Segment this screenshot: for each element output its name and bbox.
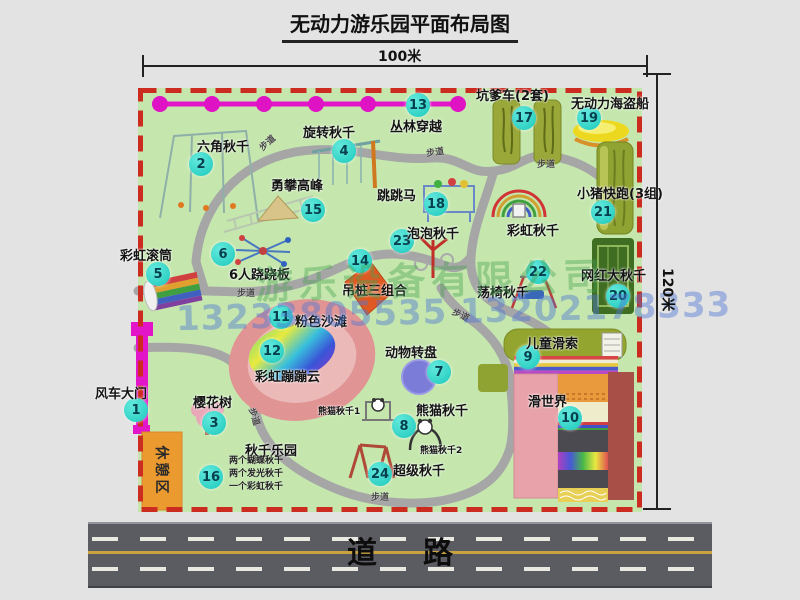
badge-six-person-seesaw: 6 bbox=[211, 242, 235, 266]
label-pirate-ship: 无动力海盗船 bbox=[571, 93, 649, 112]
path-label: 步道 bbox=[237, 286, 255, 299]
label-jumping-horse: 跳跳马 bbox=[377, 185, 416, 204]
label-animal-turntable: 动物转盘 bbox=[385, 342, 437, 361]
right-dim-tick-bottom bbox=[643, 508, 671, 510]
badge-cherry-tree: 3 bbox=[202, 411, 226, 435]
label-bubble-swing: 泡泡秋千 bbox=[407, 223, 459, 242]
badge-hexagon-swing: 2 bbox=[189, 152, 213, 176]
label-swing-chair: 荡椅秋千 bbox=[477, 282, 529, 301]
badge-pig-run: 21 bbox=[591, 200, 615, 224]
label-six-person-seesaw: 6人跷跷板 bbox=[229, 264, 290, 283]
badge-panda-swing: 8 bbox=[392, 414, 416, 438]
label-rotating-swing: 旋转秋千 bbox=[303, 122, 355, 141]
badge-pit-car: 17 bbox=[512, 106, 536, 130]
label-jungle-crossing: 丛林穿越 bbox=[390, 116, 442, 135]
road-label: 道路 bbox=[88, 524, 712, 586]
label-rainbow-swing: 彩虹秋千 bbox=[507, 220, 559, 239]
badge-hanging-pile: 14 bbox=[348, 249, 372, 273]
rest-area-label: 休憩区 bbox=[152, 446, 172, 497]
label-peak-climbing: 勇攀高峰 bbox=[271, 175, 323, 194]
badge-swing-chair: 22 bbox=[526, 260, 550, 284]
six-person-seesaw-icon bbox=[235, 235, 291, 267]
label-hexagon-swing: 六角秋千 bbox=[197, 136, 249, 155]
label-panda-swing-1: 熊猫秋千1 bbox=[318, 404, 360, 417]
label-panda-swing: 熊猫秋千 bbox=[416, 400, 468, 419]
top-dim-tick-left bbox=[142, 55, 144, 77]
park-layout-map: 无动力游乐园平面布局图 bbox=[0, 0, 800, 600]
label-rainbow-cloud: 彩虹蹦蹦云 bbox=[255, 366, 320, 385]
road: 道路 bbox=[88, 522, 712, 588]
badge-rainbow-roller: 5 bbox=[146, 262, 170, 286]
label-kids-zipline: 儿童滑索 bbox=[526, 333, 578, 352]
badge-rainbow-cloud: 12 bbox=[260, 339, 284, 363]
badge-jungle-crossing: 13 bbox=[406, 93, 430, 117]
badge-rotating-swing: 4 bbox=[332, 139, 356, 163]
badge-peak-climbing: 15 bbox=[301, 198, 325, 222]
label-slide-world: 滑世界 bbox=[528, 391, 567, 410]
label-hanging-pile: 吊桩三组合 bbox=[342, 280, 407, 299]
label-pig-run: 小猪快跑(3组) bbox=[577, 183, 663, 202]
badge-animal-turntable: 7 bbox=[427, 360, 451, 384]
badge-big-swing: 20 bbox=[606, 284, 630, 308]
map-drawing-layer bbox=[0, 0, 800, 600]
label-pit-car: 坑爹车(2套) bbox=[476, 85, 549, 104]
badge-jumping-horse: 18 bbox=[424, 192, 448, 216]
badge-pink-beach: 11 bbox=[269, 305, 293, 329]
page-title: 无动力游乐园平面布局图 bbox=[282, 8, 518, 43]
path-label: 步道 bbox=[425, 144, 445, 159]
label-super-swing: 超级秋千 bbox=[393, 460, 445, 479]
right-dimension-label: 120米 bbox=[658, 268, 678, 311]
label-big-swing: 网红大秋千 bbox=[581, 265, 646, 284]
label-windmill-gate: 风车大门 bbox=[95, 383, 147, 402]
label-cherry-tree: 樱花树 bbox=[193, 392, 232, 411]
right-dim-tick-top bbox=[643, 73, 671, 75]
label-pink-beach: 粉色沙滩 bbox=[295, 311, 347, 330]
top-dimension-label: 100米 bbox=[378, 46, 421, 66]
badge-super-swing: 24 bbox=[368, 462, 392, 486]
swing-park-notes: 两个蝴蝶秋千 两个发光秋千 一个彩虹秋千 bbox=[229, 455, 283, 494]
path-label: 步道 bbox=[371, 490, 389, 503]
rainbow-swing-icon bbox=[493, 191, 545, 217]
label-panda-swing-2: 熊猫秋千2 bbox=[420, 443, 462, 456]
badge-swing-park: 16 bbox=[199, 465, 223, 489]
path-label: 步道 bbox=[537, 157, 555, 170]
label-rainbow-roller: 彩虹滚筒 bbox=[120, 245, 172, 264]
bubble-swing-icon bbox=[415, 237, 453, 278]
